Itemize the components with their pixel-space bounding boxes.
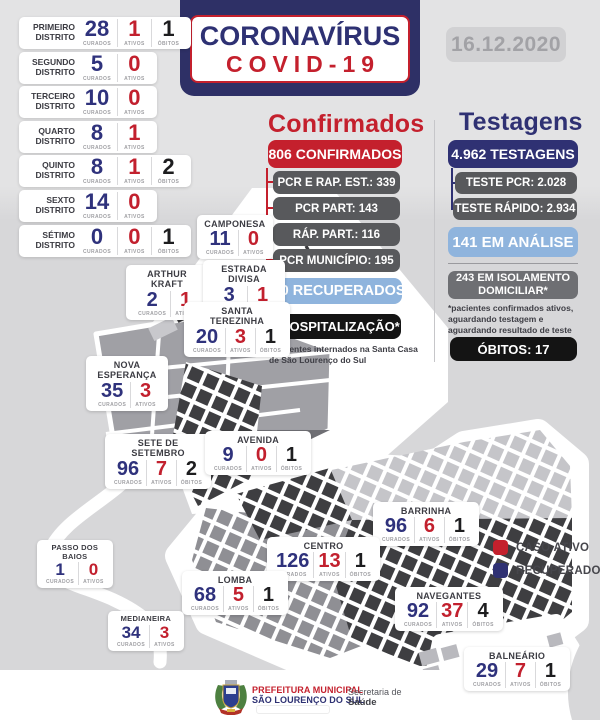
curados-label: CURADOS	[83, 179, 111, 185]
pcr-part-box: PCR PART: 143	[273, 197, 400, 220]
curados-label: CURADOS	[83, 76, 111, 82]
curados-count: 29	[476, 662, 498, 681]
curados-label: CURADOS	[138, 311, 166, 317]
recovered-label: RECUPERADO	[516, 565, 600, 577]
curados-count: 5	[91, 54, 103, 75]
neighborhood-card-balneario: BALNEÁRIO 29CURADOS 7ATIVOS 1ÓBITOS	[464, 647, 570, 691]
ativos-label: ATIVOS	[230, 348, 251, 354]
ativos-count: 0	[128, 88, 140, 109]
obitos-label: ÓBITOS	[158, 179, 179, 185]
testagens-title: Testagens	[459, 108, 583, 137]
curados-label: CURADOS	[98, 402, 126, 408]
ativos-label: ATIVOS	[243, 250, 264, 256]
recovered-swatch	[493, 563, 508, 578]
neighborhood-card-sete-de-setembro: SETE DE SETEMBRO 96CURADOS 7ATIVOS 2ÓBIT…	[105, 434, 211, 489]
isolamento-box: 243 EM ISOLAMENTO DOMICILIAR*	[448, 271, 578, 299]
curados-label: CURADOS	[83, 214, 111, 220]
district-card-terceiro: TERCEIRO DISTRITO 10CURADOS 0ATIVOS	[19, 86, 157, 118]
curados-count: 35	[101, 382, 123, 401]
curados-count: 34	[122, 625, 141, 641]
legend-active: CASO ATIVO	[493, 540, 600, 555]
obitos-label: ÓBITOS	[472, 622, 493, 628]
ativos-count: 5	[233, 586, 244, 605]
obitos-count: 2	[162, 157, 174, 178]
ativos-label: ATIVOS	[151, 480, 172, 486]
dept-line2: Saúde	[348, 697, 377, 708]
obitos-label: ÓBITOS	[350, 572, 371, 578]
curados-count: 126	[276, 552, 309, 571]
obitos-count: 1	[355, 552, 366, 571]
obitos-count: 1	[545, 662, 556, 681]
obitos-label: ÓBITOS	[281, 466, 302, 472]
covid-dashboard: CORONAVÍRUS COVID-19 16.12.2020 PRIMEIRO…	[0, 0, 600, 720]
obitos-count: 2	[186, 460, 197, 479]
ativos-label: ATIVOS	[124, 179, 145, 185]
obitos-label: ÓBITOS	[260, 348, 281, 354]
curados-count: 92	[407, 602, 429, 621]
neighborhood-card-nova-esperanca: NOVA ESPERANÇA 35CURADOS 3ATIVOS	[86, 356, 168, 411]
curados-count: 8	[91, 123, 103, 144]
curados-count: 9	[222, 446, 233, 465]
curados-label: CURADOS	[191, 606, 219, 612]
title-inner-box: CORONAVÍRUS COVID-19	[190, 15, 410, 83]
column-divider	[434, 120, 435, 362]
curados-label: CURADOS	[404, 622, 432, 628]
testagens-total-box: 4.962 TESTAGENS	[448, 140, 578, 168]
curados-count: 14	[85, 192, 109, 213]
confirmados-title: Confirmados	[268, 110, 424, 139]
neighborhood-card-navegantes: NAVEGANTES 92CURADOS 37ATIVOS 4ÓBITOS	[395, 587, 503, 631]
ativos-label: ATIVOS	[124, 249, 145, 255]
district-name: PRIMEIRO DISTRITO	[27, 23, 75, 42]
neighborhood-card-camponesa: CAMPONESA 11CURADOS 0ATIVOS	[197, 215, 273, 259]
ativos-count: 7	[515, 662, 526, 681]
pcr-municipio-box: PCR MUNICÍPIO: 195	[273, 249, 400, 272]
testagens-footnote: *pacientes confirmados ativos, aguardand…	[448, 303, 593, 336]
ativos-label: ATIVOS	[510, 682, 531, 688]
confirmados-total-box: 806 CONFIRMADOS	[268, 140, 402, 168]
obitos-label: ÓBITOS	[449, 537, 470, 543]
ativos-count: 1	[128, 19, 140, 40]
ativos-count: 0	[128, 192, 140, 213]
obitos-label: ÓBITOS	[158, 249, 179, 255]
ativos-label: ATIVOS	[228, 606, 249, 612]
ativos-count: 7	[156, 460, 167, 479]
district-name: SEXTO DISTRITO	[27, 196, 75, 215]
ativos-label: ATIVOS	[135, 402, 156, 408]
curados-label: CURADOS	[83, 249, 111, 255]
teste-rapido-box: TESTE RÁPIDO: 2.934	[453, 198, 577, 220]
ativos-label: ATIVOS	[251, 466, 272, 472]
neighborhood-name: SANTA TEREZINHA	[201, 306, 273, 327]
ativos-label: ATIVOS	[124, 110, 145, 116]
neighborhood-card-lomba: LOMBA 68CURADOS 5ATIVOS 1ÓBITOS	[182, 571, 288, 615]
curados-label: CURADOS	[193, 348, 221, 354]
ativos-label: ATIVOS	[319, 572, 340, 578]
ativos-label: ATIVOS	[124, 214, 145, 220]
obitos-label: ÓBITOS	[181, 480, 202, 486]
obitos-count: 1	[265, 328, 276, 347]
obitos-label: ÓBITOS	[158, 41, 179, 47]
obitos-count: 1	[263, 586, 274, 605]
curados-count: 20	[196, 328, 218, 347]
ativos-label: ATIVOS	[442, 622, 463, 628]
curados-count: 11	[209, 230, 230, 249]
district-card-sexto: SEXTO DISTRITO 14CURADOS 0ATIVOS	[19, 190, 157, 222]
obitos-count: 1	[286, 446, 297, 465]
ativos-count: 3	[235, 328, 246, 347]
ativos-label: ATIVOS	[419, 537, 440, 543]
ativos-count: 1	[128, 157, 140, 178]
title-banner: CORONAVÍRUS COVID-19	[180, 0, 420, 96]
curados-count: 10	[85, 88, 109, 109]
ativos-count: 3	[140, 382, 151, 401]
rap-part-box: RÁP. PART.: 116	[273, 223, 400, 246]
curados-label: CURADOS	[117, 642, 145, 648]
active-label: CASO ATIVO	[516, 542, 589, 554]
curados-count: 68	[194, 586, 216, 605]
district-card-primeiro: PRIMEIRO DISTRITO 28CURADOS 1ATIVOS 1ÓBI…	[19, 17, 191, 49]
ativos-label: ATIVOS	[124, 145, 145, 151]
obitos-count: 1	[162, 227, 174, 248]
teste-pcr-box: TESTE PCR: 2.028	[455, 172, 577, 194]
neighborhood-name: ESTRADA DIVISA	[208, 264, 280, 285]
district-card-segundo: SEGUNDO DISTRITO 5CURADOS 0ATIVOS	[19, 52, 157, 84]
ativos-count: 0	[248, 230, 259, 249]
curados-count: 96	[117, 460, 139, 479]
district-name: QUARTO DISTRITO	[27, 127, 75, 146]
curados-count: 8	[91, 157, 103, 178]
neighborhood-name: ARTHUR KRAFT	[131, 269, 203, 290]
ativos-count: 1	[128, 123, 140, 144]
curados-count: 2	[147, 291, 158, 310]
ativos-label: ATIVOS	[124, 76, 145, 82]
pcr-est-box: PCR E RAP. EST.: 339	[273, 171, 400, 194]
ativos-label: ATIVOS	[154, 642, 175, 648]
legend-recovered: RECUPERADO	[493, 563, 600, 578]
neighborhood-card-barrinha: BARRINHA 96CURADOS 6ATIVOS 1ÓBITOS	[373, 502, 479, 546]
ativos-count: 0	[256, 446, 267, 465]
neighborhood-name: NOVA ESPERANÇA	[91, 360, 163, 381]
ativos-count: 3	[160, 625, 169, 641]
neighborhood-card-passo-dos-baios: PASSO DOS BAIOS 1CURADOS 0ATIVOS	[37, 540, 113, 588]
district-name: SEGUNDO DISTRITO	[27, 58, 75, 77]
district-name: TERCEIRO DISTRITO	[27, 92, 75, 111]
ativos-count: 6	[424, 517, 435, 536]
legend: CASO ATIVO RECUPERADO	[493, 540, 600, 586]
curados-count: 96	[385, 517, 407, 536]
ativos-count: 13	[318, 552, 340, 571]
ativos-count: 0	[128, 227, 140, 248]
obitos-label: ÓBITOS	[540, 682, 561, 688]
title-coronavirus: CORONAVÍRUS	[200, 23, 401, 50]
ativos-label: ATIVOS	[124, 41, 145, 47]
obitos-count: 4	[478, 602, 489, 621]
curados-label: CURADOS	[83, 110, 111, 116]
ativos-count: 0	[89, 562, 98, 578]
obitos-box: ÓBITOS: 17	[450, 337, 577, 361]
curados-count: 1	[55, 562, 64, 578]
district-card-quinto: QUINTO DISTRITO 8CURADOS 1ATIVOS 2ÓBITOS	[19, 155, 191, 187]
neighborhood-name: PASSO DOS BAIOS	[49, 544, 101, 561]
obitos-count: 1	[454, 517, 465, 536]
confirmados-footnote: *pacientes internados na Santa Casa de S…	[269, 344, 419, 366]
neighborhood-name: SETE DE SETEMBRO	[122, 438, 194, 459]
footer-pill	[256, 705, 330, 714]
curados-count: 28	[85, 19, 109, 40]
curados-label: CURADOS	[382, 537, 410, 543]
district-card-setimo: SÉTIMO DISTRITO 0CURADOS 0ATIVOS 1ÓBITOS	[19, 225, 191, 257]
curados-label: CURADOS	[214, 466, 242, 472]
curados-label: CURADOS	[473, 682, 501, 688]
testagens-divider	[448, 263, 578, 264]
district-card-quarto: QUARTO DISTRITO 8CURADOS 1ATIVOS	[19, 121, 157, 153]
curados-count: 0	[91, 227, 103, 248]
district-name: SÉTIMO DISTRITO	[27, 231, 75, 250]
curados-label: CURADOS	[206, 250, 234, 256]
date-badge: 16.12.2020	[446, 27, 566, 62]
curados-label: CURADOS	[83, 145, 111, 151]
ativos-count: 37	[441, 602, 463, 621]
recuperados-box: 700 RECUPERADOS	[268, 278, 402, 304]
ativos-label: ATIVOS	[83, 579, 104, 585]
obitos-label: ÓBITOS	[258, 606, 279, 612]
ativos-count: 0	[128, 54, 140, 75]
curados-label: CURADOS	[114, 480, 142, 486]
neighborhood-card-avenida: AVENIDA 9CURADOS 0ATIVOS 1ÓBITOS	[205, 431, 311, 475]
analise-box: 141 EM ANÁLISE	[448, 227, 578, 257]
obitos-count: 1	[162, 19, 174, 40]
district-name: QUINTO DISTRITO	[27, 161, 75, 180]
footer-dept: Secretaria de Saúde	[348, 688, 402, 708]
title-covid19: COVID-19	[220, 53, 380, 76]
neighborhood-card-santa-terezinha: SANTA TEREZINHA 20CURADOS 3ATIVOS 1ÓBITO…	[184, 302, 290, 357]
curados-label: CURADOS	[46, 579, 74, 585]
city-coat-of-arms	[212, 677, 250, 715]
curados-label: CURADOS	[83, 41, 111, 47]
neighborhood-card-medianeira: MEDIANEIRA 34CURADOS 3ATIVOS	[108, 611, 184, 651]
active-swatch	[493, 540, 508, 555]
